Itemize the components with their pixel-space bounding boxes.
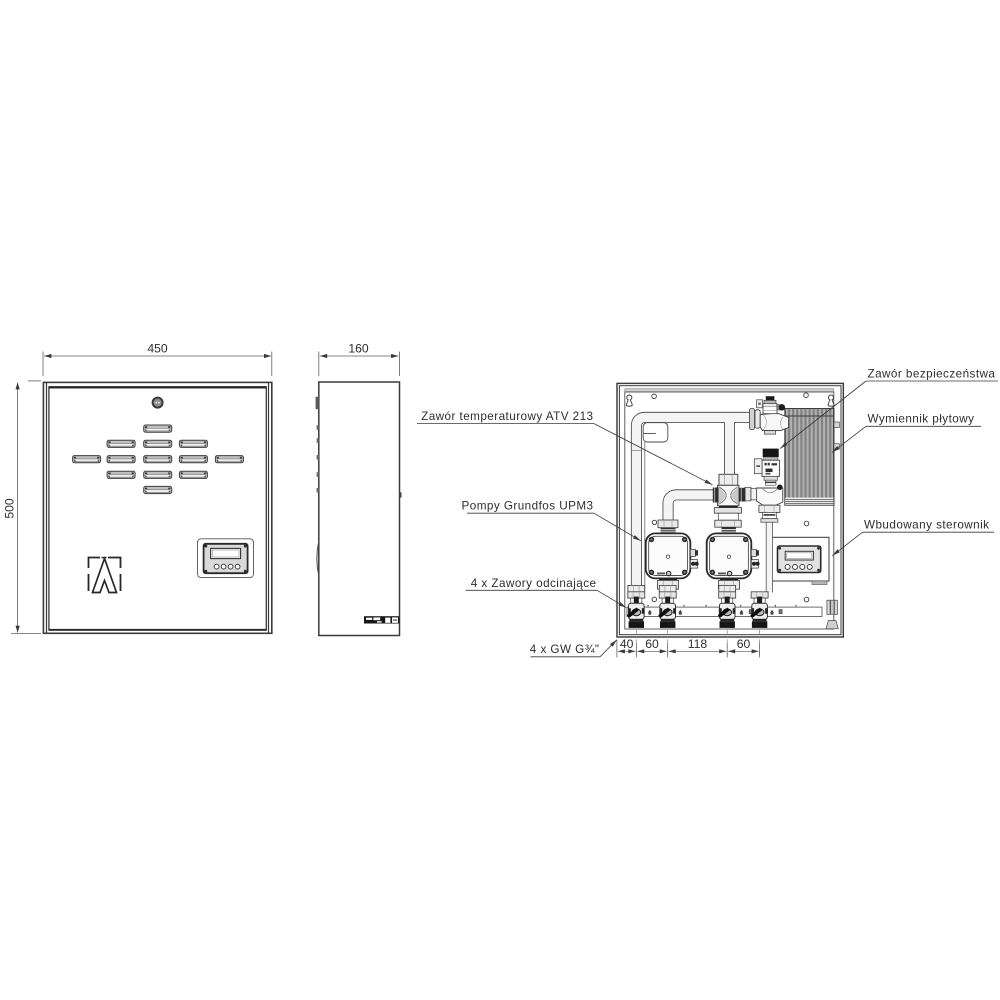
svg-text:Wbudowany sterownik: Wbudowany sterownik bbox=[864, 518, 989, 531]
svg-text:60: 60 bbox=[645, 637, 659, 651]
svg-text:4 x GW G¾": 4 x GW G¾" bbox=[530, 643, 600, 656]
svg-text:118: 118 bbox=[688, 637, 708, 651]
svg-text:450: 450 bbox=[147, 342, 168, 356]
svg-text:Pompy Grundfos UPM3: Pompy Grundfos UPM3 bbox=[462, 500, 594, 513]
svg-text:4 x Zawory odcinające: 4 x Zawory odcinające bbox=[471, 577, 597, 590]
svg-text:Zawór temperaturowy ATV 213: Zawór temperaturowy ATV 213 bbox=[421, 410, 593, 423]
svg-text:60: 60 bbox=[737, 637, 751, 651]
svg-text:Wymiennik płytowy: Wymiennik płytowy bbox=[868, 413, 975, 426]
svg-text:160: 160 bbox=[348, 342, 369, 356]
svg-text:Zawór bezpieczeństwa: Zawór bezpieczeństwa bbox=[868, 368, 996, 381]
svg-text:40: 40 bbox=[620, 637, 634, 651]
svg-text:500: 500 bbox=[3, 498, 17, 519]
